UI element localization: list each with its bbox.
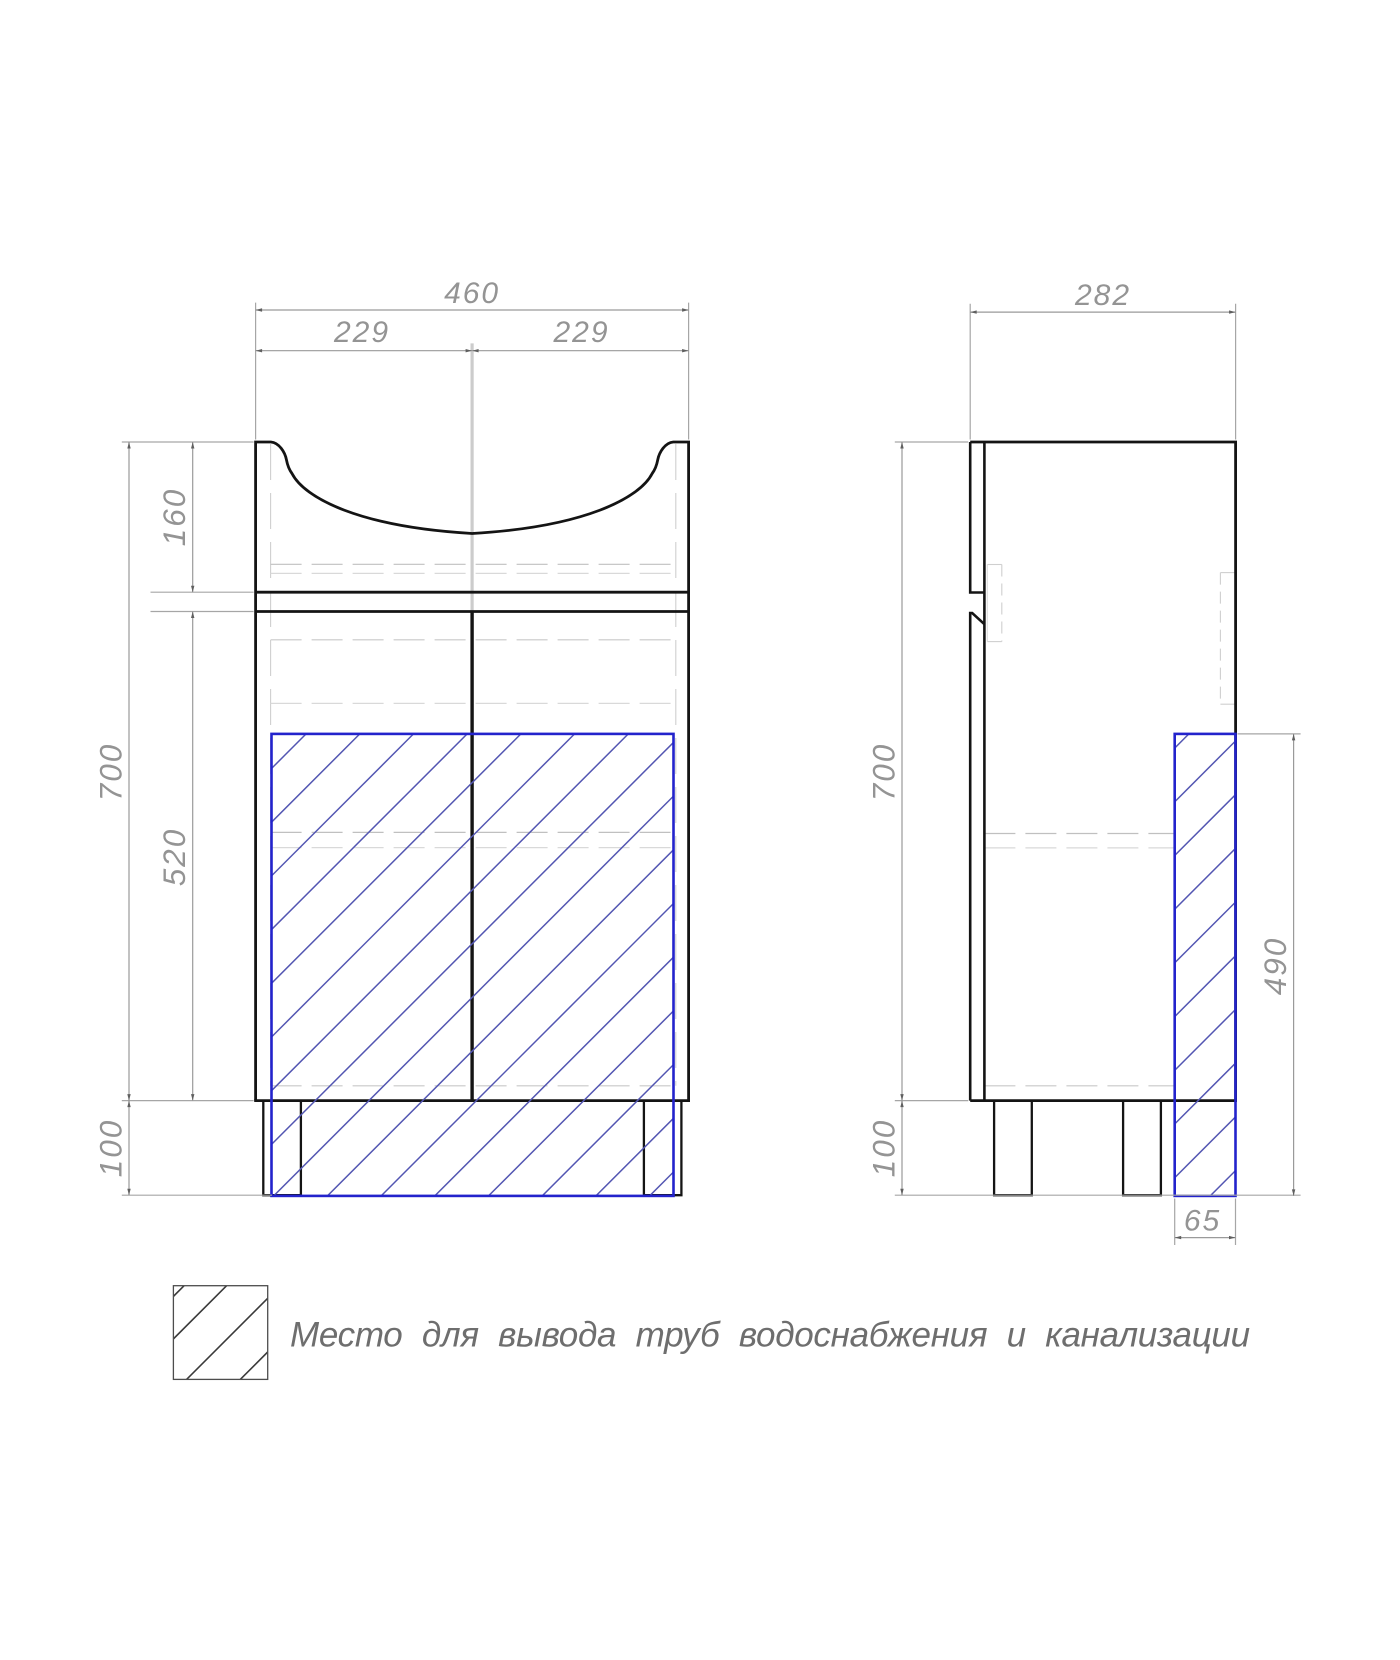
svg-text:460: 460 [444, 277, 500, 310]
svg-text:229: 229 [552, 316, 609, 349]
svg-text:160: 160 [156, 488, 192, 547]
svg-text:490: 490 [1257, 937, 1293, 996]
svg-text:100: 100 [93, 1119, 129, 1178]
svg-text:Место для вывода труб водоснаб: Место для вывода труб водоснабжения и ка… [290, 1316, 1250, 1355]
svg-text:100: 100 [866, 1119, 902, 1178]
svg-text:520: 520 [156, 828, 192, 887]
svg-text:65: 65 [1184, 1204, 1221, 1237]
svg-text:282: 282 [1074, 279, 1131, 312]
svg-text:700: 700 [866, 743, 902, 802]
svg-text:229: 229 [333, 316, 390, 349]
svg-text:700: 700 [93, 743, 129, 802]
